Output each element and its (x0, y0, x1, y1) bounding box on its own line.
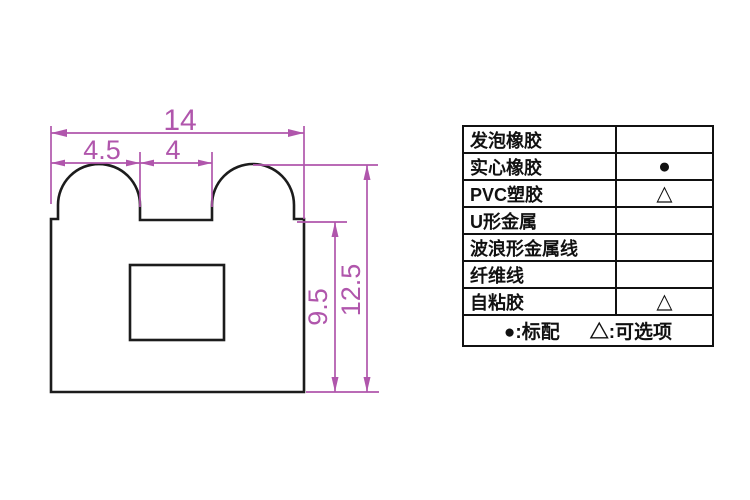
material-label: U形金属 (464, 208, 617, 233)
legend-standard: ●:标配 (504, 317, 560, 344)
dimension-lines (51, 133, 367, 392)
table-row: U形金属 (464, 208, 712, 235)
triangle-symbol: △ (617, 181, 712, 206)
symbol-cell (617, 208, 712, 233)
triangle-symbol: △ (617, 289, 712, 314)
profile-body-path (51, 164, 304, 392)
material-label: 波浪形金属线 (464, 235, 617, 260)
table-legend-row: ●:标配 △:可选项 (464, 316, 712, 345)
symbol-cell (617, 127, 712, 152)
dim-text-total-height: 12.5 (336, 264, 366, 317)
profile-drawing: 14 4.5 4 9.5 12.5 (0, 0, 440, 500)
material-label: PVC塑胶 (464, 181, 617, 206)
filled-circle-symbol: ● (617, 154, 712, 179)
extension-lines (51, 126, 379, 392)
dimension-arrowheads (51, 129, 371, 392)
table-row: 纤维线 (464, 262, 712, 289)
symbol-cell (617, 262, 712, 287)
profile-inner-hole (130, 265, 224, 340)
dim-text-total-width: 14 (163, 104, 196, 137)
dim-text-left-bump: 4.5 (83, 135, 121, 165)
material-options-table: 发泡橡胶 实心橡胶 ● PVC塑胶 △ U形金属 波浪形金属线 纤维线 自粘胶 … (462, 125, 714, 347)
symbol-cell (617, 235, 712, 260)
material-label: 发泡橡胶 (464, 127, 617, 152)
material-label: 自粘胶 (464, 289, 617, 314)
dim-text-inner-height: 9.5 (303, 288, 333, 326)
dim-text-valley: 4 (165, 135, 180, 165)
legend-optional: △:可选项 (590, 317, 672, 344)
table-row: PVC塑胶 △ (464, 181, 712, 208)
table-row: 波浪形金属线 (464, 235, 712, 262)
table-row: 发泡橡胶 (464, 127, 712, 154)
table-row: 实心橡胶 ● (464, 154, 712, 181)
profile-outline (51, 164, 304, 392)
page-canvas: 14 4.5 4 9.5 12.5 发泡橡胶 实心橡胶 ● PVC塑胶 △ U形… (0, 0, 750, 500)
material-label: 纤维线 (464, 262, 617, 287)
table-row: 自粘胶 △ (464, 289, 712, 316)
material-label: 实心橡胶 (464, 154, 617, 179)
